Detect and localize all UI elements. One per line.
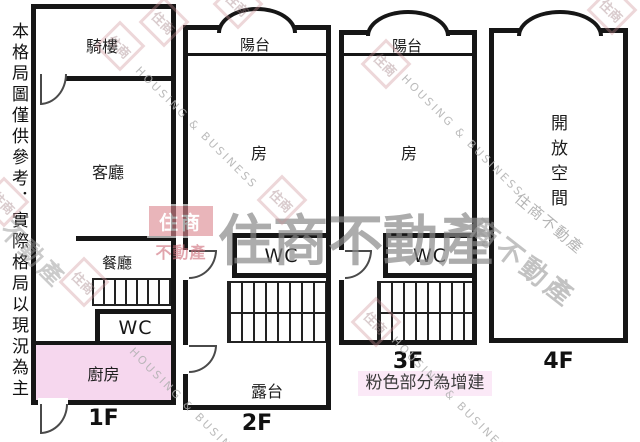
disclaimer-text: 本格局圖僅供參考．實際格局以現況為主: [6, 22, 31, 400]
stairs-1f: [92, 278, 171, 306]
room-label-room-2f: 房: [251, 140, 267, 164]
room-label-room-3f: 房: [401, 140, 417, 164]
room-label-dining: 餐廳: [102, 252, 132, 273]
note-pink-addition: 粉色部分為增建: [358, 371, 492, 396]
panel-3f: 陽台 房 WC: [339, 30, 477, 345]
room-label-open-space: 開放空間: [545, 114, 570, 214]
stairs-2f: [227, 281, 326, 343]
floor-label-1f: 1F: [31, 406, 176, 431]
balcony-arch-3f: [366, 10, 450, 36]
room-label-wc-2f: WC: [264, 245, 298, 267]
balcony-arch-4f: [517, 10, 603, 36]
floor-label-2f: 2F: [183, 411, 331, 436]
wall-balcony-2f: [188, 53, 326, 56]
room-label-balcony-2f: 陽台: [240, 34, 270, 55]
wc-room-3f: WC: [383, 233, 472, 278]
wall-arcade: [66, 76, 171, 81]
room-label-terrace: 露台: [251, 378, 283, 402]
kitchen-room: 廚房: [36, 341, 171, 400]
floor-plan-image: 本格局圖僅供參考．實際格局以現況為主 騎樓 客廳 餐廳 WC 廚房 1F 陽台 …: [0, 0, 640, 442]
room-label-living: 客廳: [92, 159, 124, 183]
wall-dining: [76, 236, 171, 241]
panel-1f: 騎樓 客廳 餐廳 WC 廚房: [31, 4, 176, 405]
wc-room-1f: WC: [95, 309, 171, 341]
floor-label-4f: 4F: [489, 349, 628, 374]
stairs-3f: [377, 281, 472, 340]
room-label-kitchen: 廚房: [87, 361, 119, 385]
wall-balcony-3f: [344, 53, 472, 56]
balcony-arch-2f: [217, 7, 297, 33]
room-label-arcade: 騎樓: [86, 33, 118, 57]
room-label-wc-3f: WC: [413, 245, 447, 267]
wc-room-2f: WC: [232, 233, 326, 278]
room-label-wc-1f: WC: [118, 317, 152, 339]
